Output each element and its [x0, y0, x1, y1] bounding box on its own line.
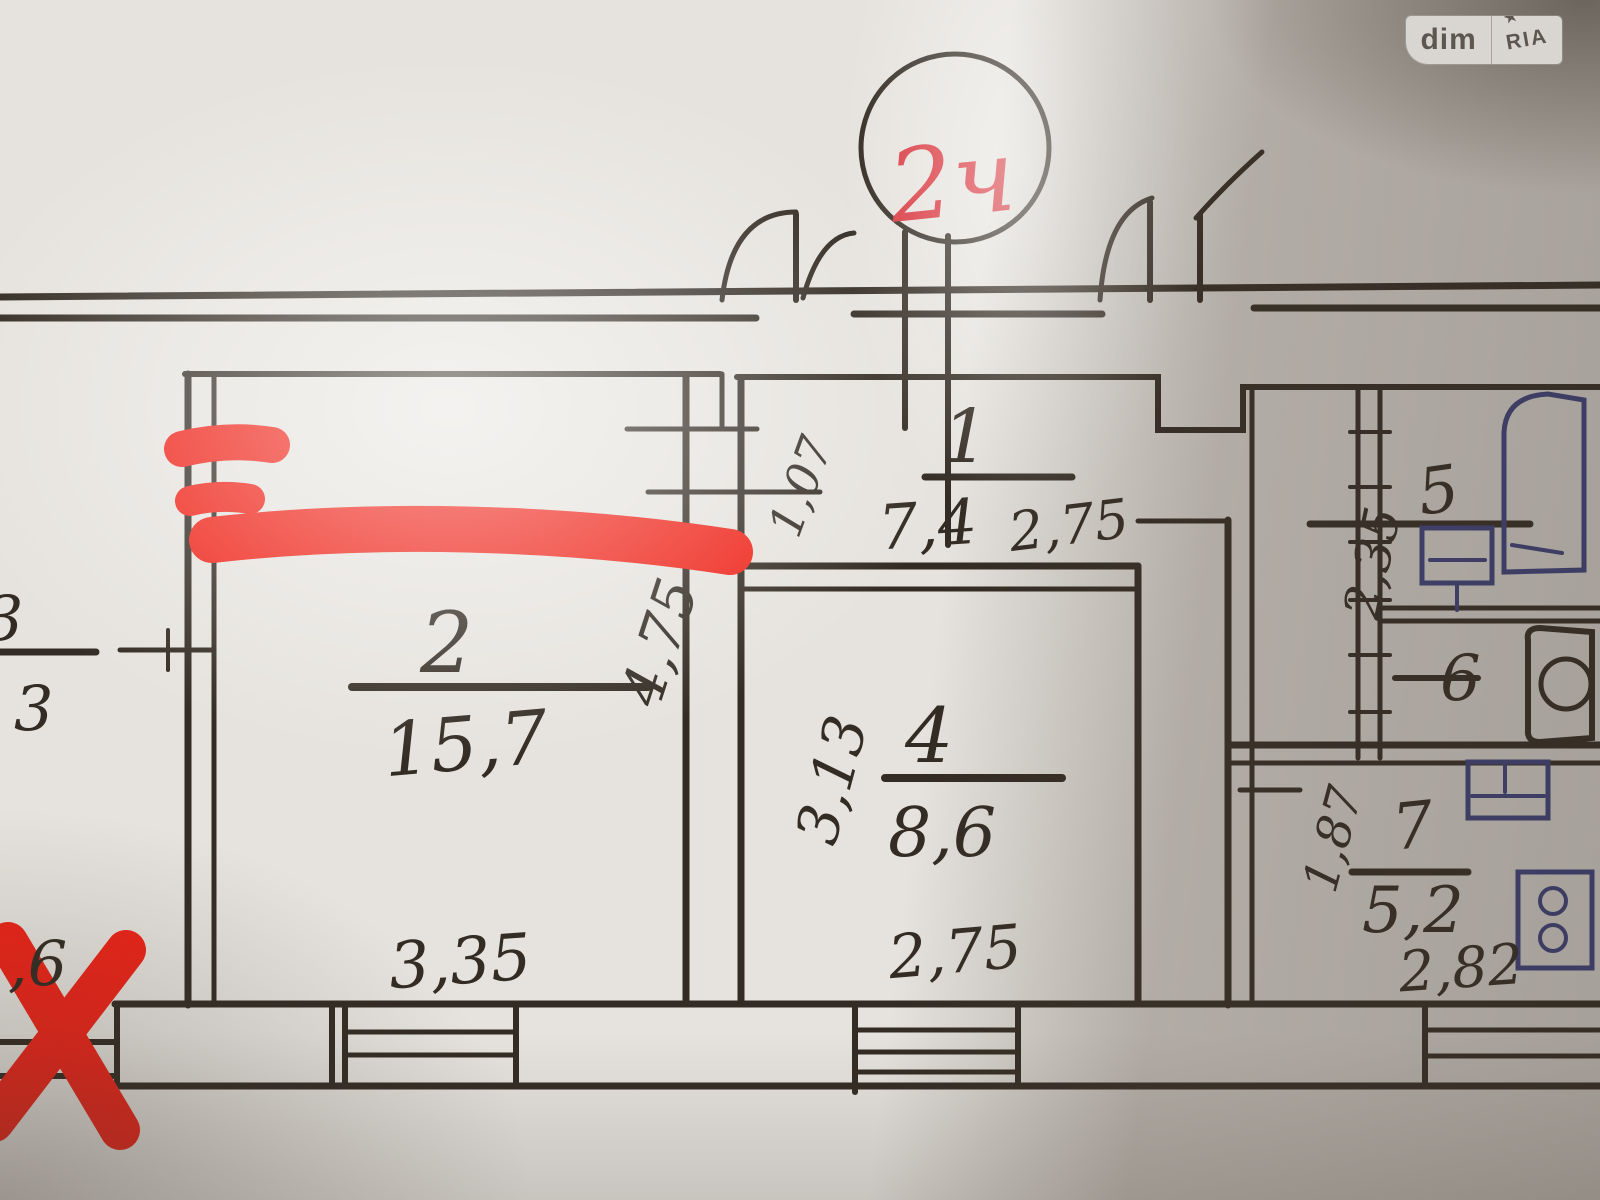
red-dash-1	[182, 442, 272, 449]
door-arc-left-1	[722, 212, 796, 300]
sink-room7-icon	[1468, 762, 1548, 818]
floor-plan-photo: 2ч 1 7,4 2,75 2 15,7 3,35 4,75 3 3 ,6 4 …	[0, 0, 1600, 1200]
bathtub-drain-icon	[1512, 545, 1562, 553]
stove-burner-2	[1540, 925, 1566, 951]
room2-depth-dim: 4,75	[607, 570, 712, 715]
red-marker-annotations	[0, 442, 730, 1130]
dim-ria-watermark: dim ★ RIA	[1406, 16, 1562, 64]
window-hatch-room7	[1428, 1030, 1600, 1056]
red-strike-line	[212, 529, 730, 552]
wall-inner-top-right	[737, 377, 1600, 430]
left-bottom-dim-partial: ,6	[8, 927, 67, 1000]
floor-plan-drawing: 2ч 1 7,4 2,75 2 15,7 3,35 4,75 3 3 ,6 4 …	[0, 0, 1600, 1200]
door-arc-right-1	[1100, 198, 1152, 300]
room3-area-partial: 3	[14, 672, 53, 745]
room2-number: 2	[419, 594, 473, 692]
star-icon: ★	[1501, 16, 1521, 27]
room1-width-dim: 2,75	[1004, 487, 1132, 564]
room5-number: 5	[1413, 452, 1464, 531]
basin-room5-icon	[1422, 528, 1492, 583]
hall-width-dim: 1,07	[758, 428, 844, 543]
watermark-dim-label: dim	[1406, 16, 1490, 64]
wall-top-outer	[0, 285, 1600, 297]
watermark-ria-label: ★ RIA	[1488, 16, 1562, 64]
room7-width-dim: 2,82	[1396, 932, 1526, 1006]
stove-burner-1	[1540, 888, 1566, 914]
room4-number: 4	[904, 691, 953, 780]
room2-width-dim: 3,35	[386, 921, 533, 1005]
room7-number: 7	[1389, 788, 1438, 866]
room1-area: 7,4	[876, 485, 979, 565]
watermark-ria-text: RIA	[1504, 25, 1550, 56]
door-arc-right-2	[1196, 152, 1262, 218]
red-dash-2	[190, 497, 250, 501]
room1-number: 1	[942, 394, 989, 480]
window-hatch-room4	[858, 1030, 1016, 1072]
room2-area: 15,7	[380, 694, 552, 794]
room4-width-dim: 2,75	[884, 912, 1024, 993]
toilet-bowl-icon	[1541, 659, 1591, 709]
apartment-number-label: 2ч	[882, 116, 1020, 246]
toilet-icon	[1528, 628, 1592, 742]
room6-number: 6	[1440, 642, 1481, 716]
window-hatch-room2	[348, 1032, 514, 1055]
room4-depth-dim: 3,13	[782, 709, 881, 851]
room4-area: 8,6	[888, 794, 996, 873]
room3-number: 3	[0, 582, 23, 655]
